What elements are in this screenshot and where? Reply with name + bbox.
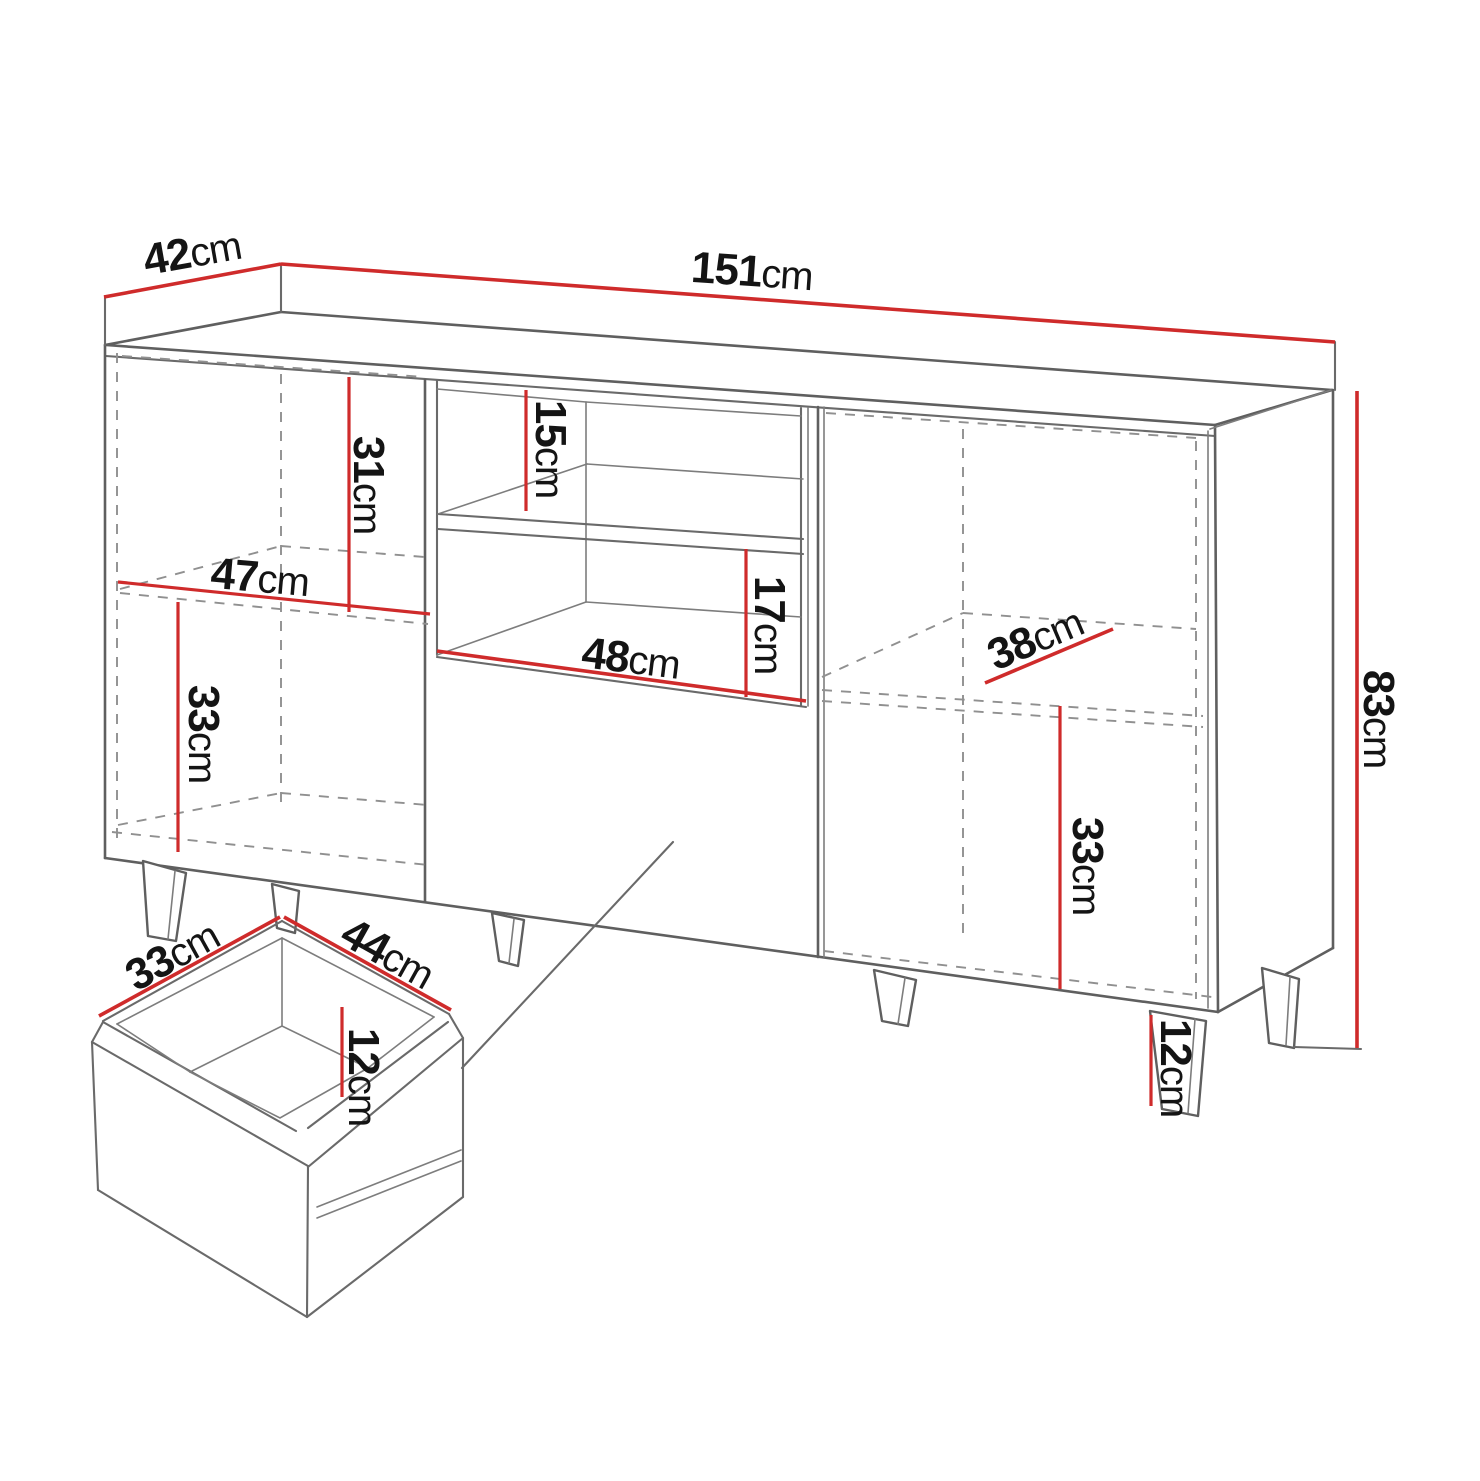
dim-right-depth-label: 38cm bbox=[980, 597, 1090, 681]
dim-left-width-label: 47cm bbox=[209, 549, 311, 606]
dim-niche-upper-label: 15cm bbox=[526, 400, 575, 498]
dimension-labels: 42cm 151cm 83cm 31cm 15cm 47cm 48cm 17cm… bbox=[117, 220, 1403, 1126]
dim-niche-width-label: 48cm bbox=[579, 628, 683, 689]
leg-back-left bbox=[272, 884, 299, 933]
dim-left-lower-height-label: 33cm bbox=[179, 685, 228, 783]
leg-back-right bbox=[1262, 968, 1299, 1048]
drawer-leader-line bbox=[462, 842, 673, 1068]
leg-front-middle-left bbox=[492, 913, 524, 966]
dim-left-upper-height-label: 31cm bbox=[344, 436, 393, 534]
dim-niche-lower-label: 17cm bbox=[745, 576, 794, 674]
furniture-dimension-diagram: 42cm 151cm 83cm 31cm 15cm 47cm 48cm 17cm… bbox=[0, 0, 1480, 1481]
dim-right-lower-height-label: 33cm bbox=[1063, 817, 1112, 915]
dim-height-label: 83cm bbox=[1354, 670, 1403, 768]
cabinet-right-interior-hidden bbox=[822, 413, 1212, 999]
diagram-canvas: 42cm 151cm 83cm 31cm 15cm 47cm 48cm 17cm… bbox=[0, 0, 1480, 1481]
dim-width-label: 151cm bbox=[690, 243, 815, 300]
floor-reference-line bbox=[1294, 1047, 1361, 1049]
leg-front-middle-right bbox=[874, 970, 916, 1026]
dim-leg-height-label: 12cm bbox=[1151, 1019, 1200, 1117]
dim-drawer-width-label: 44cm bbox=[333, 908, 443, 999]
dim-drawer-height-label: 12cm bbox=[339, 1028, 388, 1126]
